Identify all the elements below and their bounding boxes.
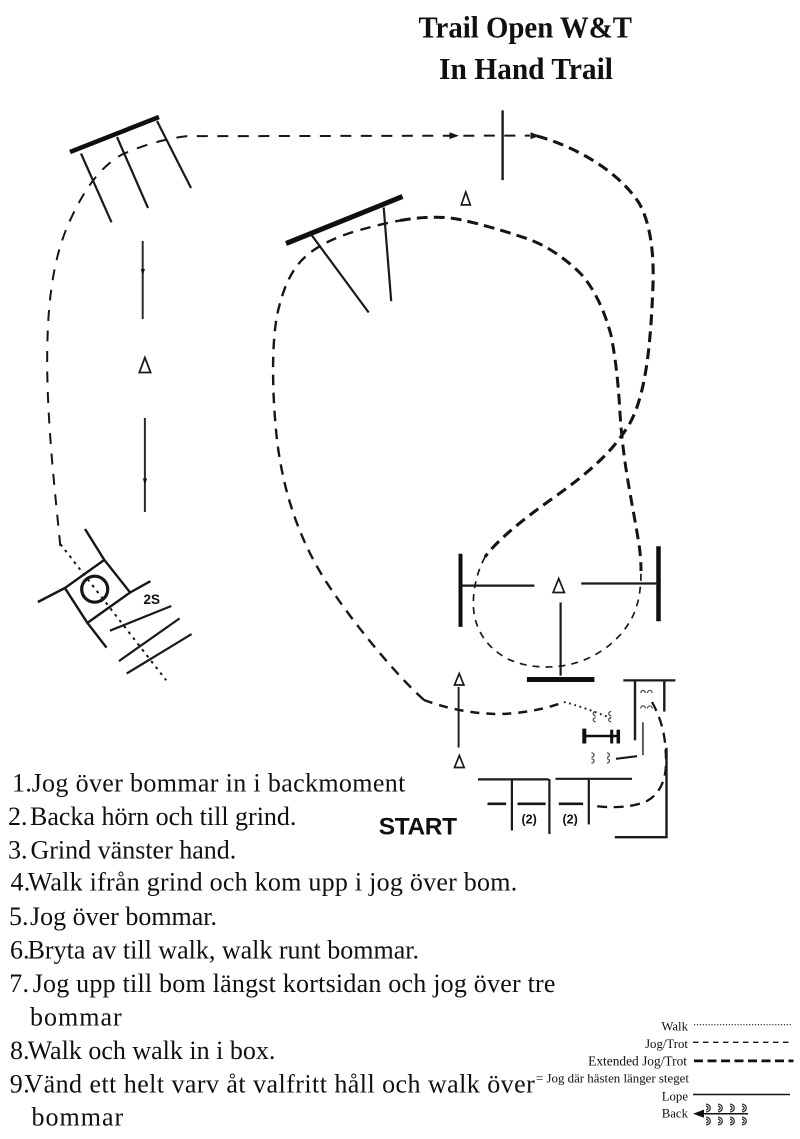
- svg-text:In Hand Trail: In Hand Trail: [439, 51, 613, 86]
- svg-text:Back: Back: [662, 1107, 689, 1121]
- svg-text:bommar: bommar: [30, 1002, 123, 1031]
- svg-text:2S: 2S: [144, 592, 161, 607]
- svg-text:Walk: Walk: [661, 1020, 688, 1034]
- svg-text:3.Grind vänster hand.: 3.Grind vänster hand.: [8, 835, 236, 864]
- svg-text:2.Backa hörn och till grind.: 2.Backa hörn och till grind.: [8, 802, 296, 831]
- svg-text:Trail Open W&T: Trail Open W&T: [418, 10, 632, 44]
- svg-text:4.Walk ifrån grind och kom upp: 4.Walk ifrån grind och kom upp i jog öve…: [11, 868, 518, 897]
- svg-text:START: START: [379, 813, 457, 840]
- svg-text:6.Bryta av till walk, walk run: 6.Bryta av till walk, walk runt bommar.: [10, 936, 419, 965]
- svg-text:Jog/Trot: Jog/Trot: [645, 1037, 688, 1051]
- svg-text:5.Jog över bommar.: 5.Jog över bommar.: [9, 902, 217, 931]
- svg-text:(2): (2): [522, 813, 537, 827]
- svg-text:= Jog där hästen länger steget: = Jog där hästen länger steget: [536, 1072, 689, 1086]
- svg-text:Extended Jog/Trot: Extended Jog/Trot: [588, 1054, 687, 1069]
- svg-text:(2): (2): [563, 813, 578, 827]
- svg-text:Lope: Lope: [662, 1090, 689, 1104]
- svg-text:8.Walk och walk in i box.: 8.Walk och walk in i box.: [10, 1036, 275, 1065]
- svg-text:7.Jog upp till bom längst kort: 7.Jog upp till bom längst kortsidan och …: [9, 969, 555, 998]
- svg-text:9.Vänd ett helt varv åt valfri: 9.Vänd ett helt varv åt valfritt håll oc…: [10, 1070, 535, 1099]
- svg-text:1.Jog över bommar in i backmom: 1.Jog över bommar in i backmoment: [12, 769, 406, 798]
- svg-text:bommar: bommar: [32, 1103, 125, 1132]
